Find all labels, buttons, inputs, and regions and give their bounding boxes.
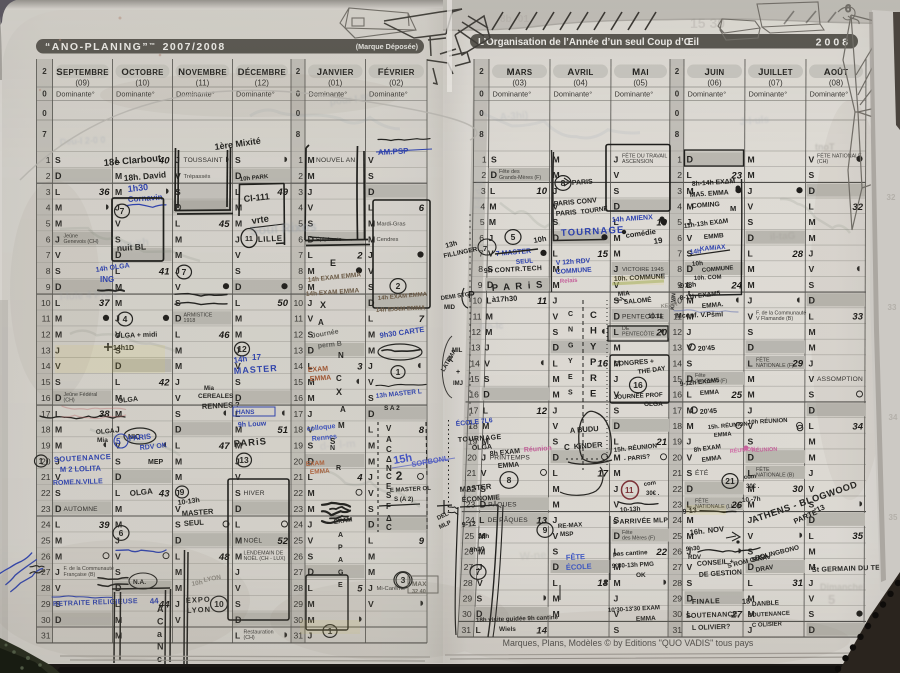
svg-text:35: 35 bbox=[889, 513, 898, 522]
svg-text:33: 33 bbox=[888, 303, 897, 312]
svg-text:32: 32 bbox=[887, 193, 896, 202]
svg-text:34: 34 bbox=[889, 413, 898, 422]
